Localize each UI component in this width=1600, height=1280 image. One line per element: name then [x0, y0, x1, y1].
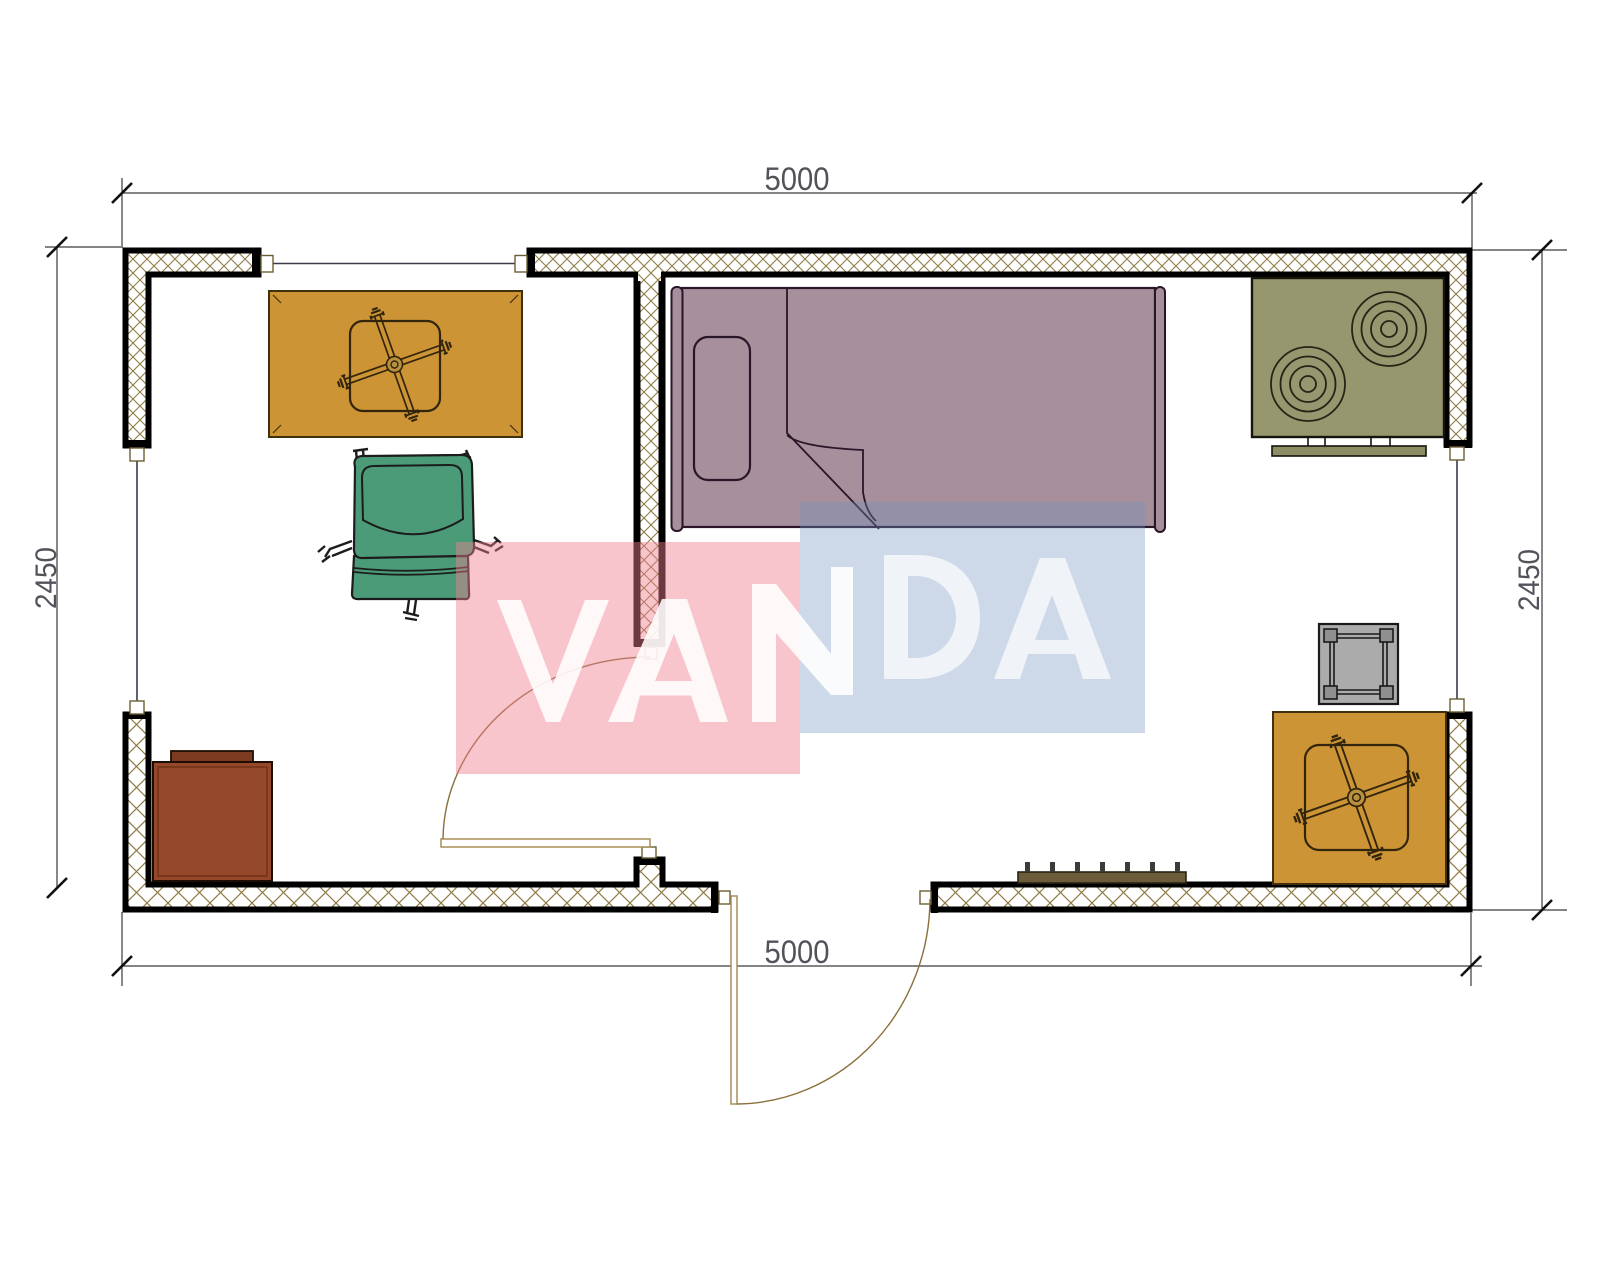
svg-text:2450: 2450 [1513, 549, 1546, 611]
svg-text:5000: 5000 [765, 161, 830, 197]
svg-text:2450: 2450 [30, 547, 63, 609]
svg-text:5000: 5000 [765, 934, 830, 970]
